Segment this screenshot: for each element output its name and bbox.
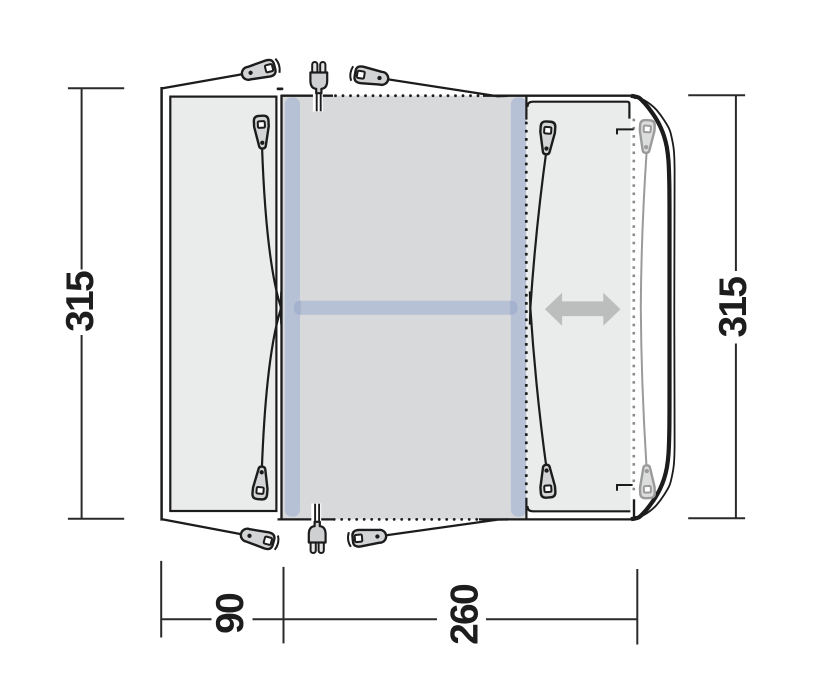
svg-text:315: 315 [712,277,755,338]
svg-text:90: 90 [209,593,252,634]
svg-text:315: 315 [59,271,102,332]
svg-text:260: 260 [444,584,487,645]
